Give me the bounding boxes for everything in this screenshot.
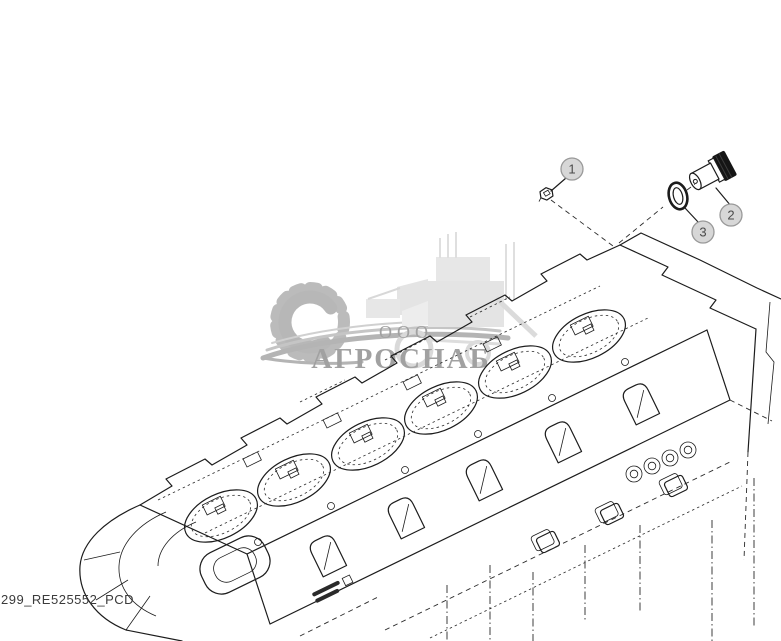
camshaft-lobes [626, 442, 696, 482]
exploded-parts: 1 2 3 [536, 150, 742, 246]
o-ring-part[interactable] [666, 181, 690, 212]
watermark-company-name: АГРОСНАБ [311, 343, 490, 375]
callout-balloon-1[interactable]: 1 [561, 158, 583, 180]
drawing-code-label: 299_RE525552_PCD [1, 592, 134, 607]
balloon-number: 1 [568, 162, 575, 177]
balloon-number: 2 [727, 208, 734, 223]
cast-marking [312, 575, 355, 603]
deck-left-edge [140, 505, 247, 554]
parts-diagram-page: ООО АГРОСНАБ [0, 0, 781, 641]
parts-diagram-canvas: ООО АГРОСНАБ [0, 0, 781, 641]
deck-rear-edge [140, 245, 620, 505]
threaded-plug-part[interactable] [685, 150, 737, 196]
callout-balloon-3[interactable]: 3 [692, 221, 714, 243]
balloon-number: 3 [699, 225, 706, 240]
tappet-bosses [530, 471, 688, 555]
watermark: ООО АГРОСНАБ [263, 232, 536, 375]
callout-balloon-2[interactable]: 2 [720, 204, 742, 226]
front-face-arches [307, 381, 659, 577]
head-bolt-holes [255, 359, 629, 546]
